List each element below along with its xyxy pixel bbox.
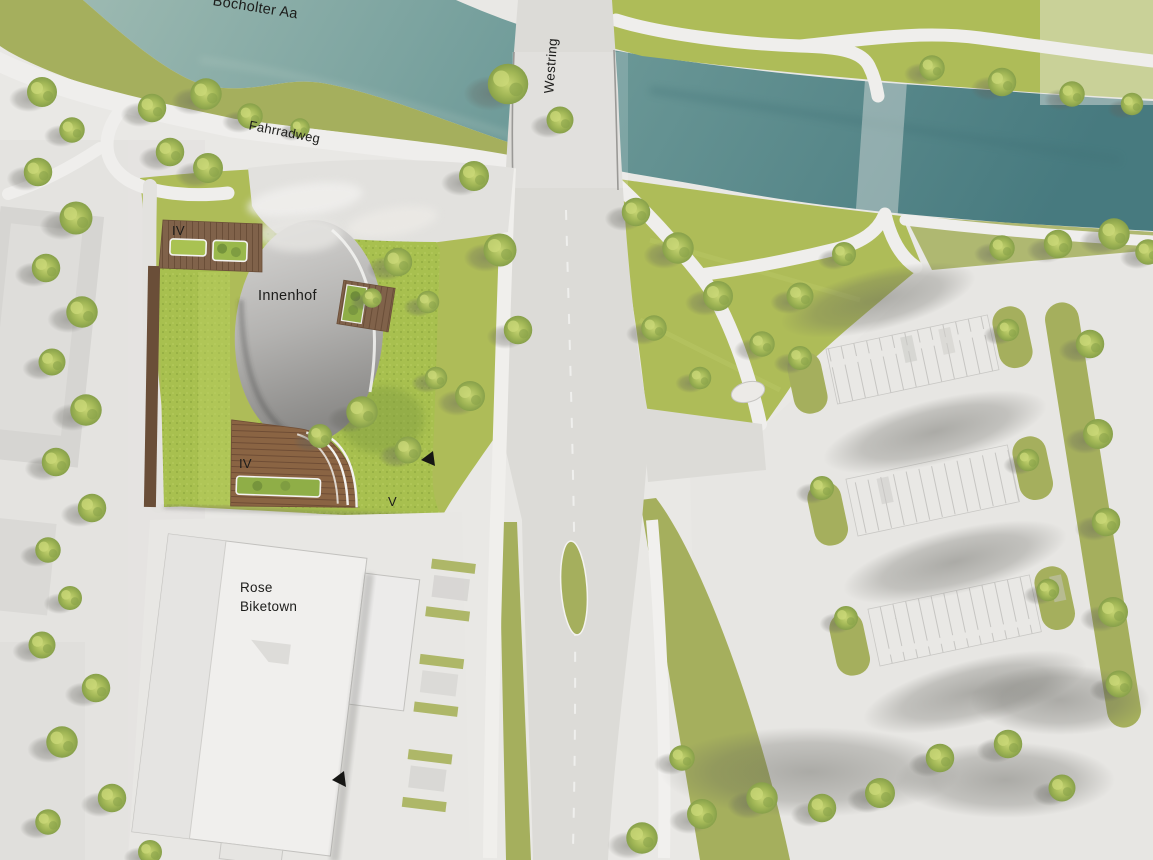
existing-store-line1: Rose [240, 580, 273, 595]
floors-label-south: IV [239, 457, 252, 472]
floors-label-north: IV [172, 224, 185, 239]
existing-store-line2: Biketown [240, 599, 297, 614]
courtyard-label: Innenhof [258, 288, 317, 305]
site-plan-canvas: Bocholter Aa Westring Fahrradweg IV Inne… [0, 0, 1153, 860]
site-plan-drawing [0, 0, 1153, 860]
floors-label-v: V [388, 495, 397, 510]
planter-box [170, 239, 207, 256]
rose-biketown-site [128, 512, 476, 860]
existing-store-label: RoseBiketown [240, 579, 297, 617]
